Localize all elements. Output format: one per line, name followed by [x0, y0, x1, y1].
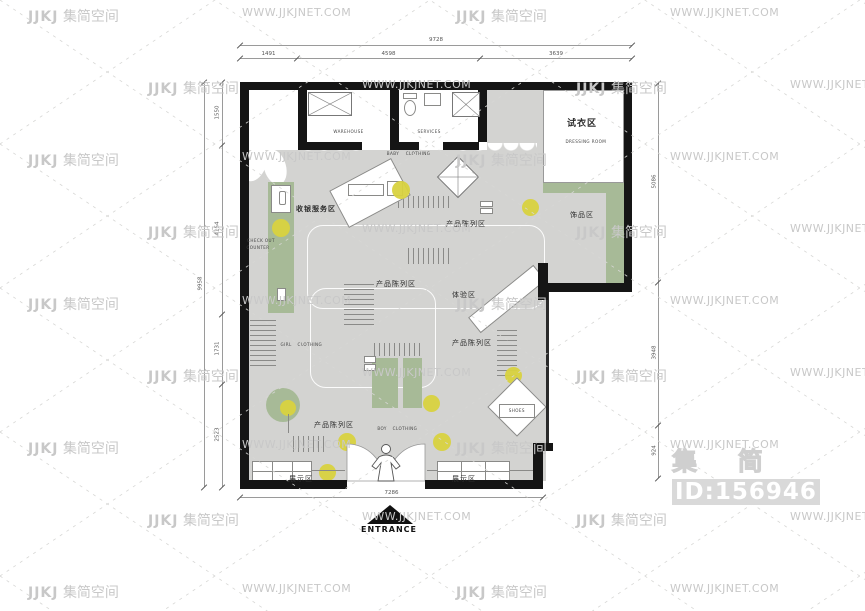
showcase-label-right: 展示区: [452, 474, 476, 484]
girl-clothing-label: GIRL CLOTHING: [281, 343, 323, 348]
entrance-doors: [0, 0, 865, 611]
wall-fitting-bottom: [538, 283, 632, 292]
dim-top-seg2: 4598: [304, 50, 472, 56]
wall-fitting-corner: [538, 263, 548, 300]
dim-top-seg3: 3639: [486, 50, 626, 56]
bench-vertical: [606, 192, 624, 289]
fitting-room: [543, 90, 624, 183]
dim-right-seg1: 5086: [651, 163, 657, 200]
toilet-tank: [403, 93, 417, 99]
floor-plan: SHOES: [0, 0, 865, 611]
floor-plan-canvas: SHOES: [0, 0, 865, 611]
dim-left-seg3: 1731: [214, 330, 220, 367]
dim-line: [204, 82, 205, 487]
dim-top-total: 9728: [256, 36, 617, 42]
wall-bottom-right: [425, 480, 543, 489]
storage-crate: [308, 92, 352, 116]
cashier-area-label: 收银服务区: [296, 204, 336, 214]
dim-right-seg2: 3948: [651, 334, 657, 371]
product-display-label-3: 产品陈列区: [452, 338, 492, 348]
checkout-label-2: COUNTER: [247, 246, 270, 251]
wall-glass-right: [546, 291, 549, 443]
services-label: SERVICES: [418, 130, 441, 135]
dim-bottom-total: 7286: [252, 489, 531, 495]
dim-left-seg4: 2523: [214, 416, 220, 453]
dim-top-seg1: 1491: [242, 50, 294, 56]
entrance-arrow: [367, 505, 413, 524]
partition-warehouse-bottom: [298, 142, 362, 150]
dim-line: [240, 58, 632, 59]
sink: [424, 93, 441, 106]
partition-services-bottom-left: [399, 142, 419, 150]
dim-right-seg3: 924: [651, 432, 657, 469]
toilet-bowl: [404, 100, 416, 116]
entrance-label: ENTRANCE: [361, 525, 417, 534]
product-display-label-2: 产品陈列区: [376, 279, 416, 289]
fitting-area-label: 试衣区: [567, 116, 597, 129]
warehouse-label: WAREHOUSE: [333, 130, 363, 135]
accessories-area-label: 饰品区: [570, 210, 594, 220]
dim-line: [240, 45, 632, 46]
dim-line: [240, 497, 543, 498]
experience-area-label: 体验区: [452, 290, 476, 300]
dim-left-total: 9958: [197, 265, 203, 302]
dressing-room-label: DRESSING ROOM: [565, 140, 606, 145]
showcase-label-left: 展示区: [289, 474, 313, 484]
shaft-crate: [452, 92, 480, 117]
boy-clothing-label: BOY CLOTHING: [377, 427, 417, 432]
partition-warehouse-left: [298, 82, 307, 145]
wall-right: [624, 82, 632, 291]
wall-corner-stub: [533, 443, 553, 451]
dim-left-seg2: 4154: [214, 210, 220, 247]
partition-mid: [390, 82, 399, 150]
dim-left-seg1: 1550: [214, 94, 220, 131]
mannequin-head: [382, 445, 391, 454]
wall-left: [240, 82, 249, 489]
partition-services-bottom-right: [443, 142, 479, 150]
product-display-label-1: 产品陈列区: [446, 219, 486, 229]
baby-clothing-label: BABY CLOTHING: [387, 152, 431, 157]
checkout-label-1: CHECK OUT: [247, 239, 275, 244]
product-display-label-4: 产品陈列区: [314, 420, 354, 430]
